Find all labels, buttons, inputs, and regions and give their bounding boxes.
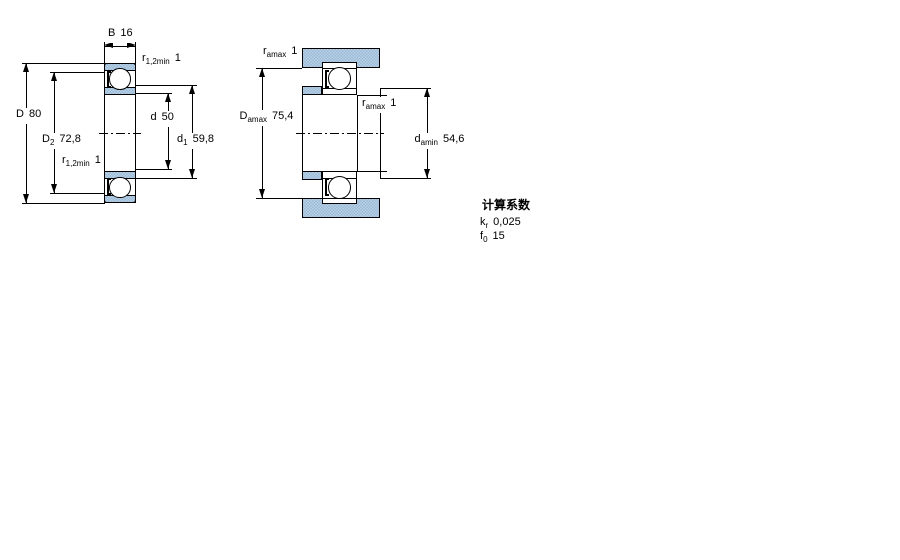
dim-label-d: d50 <box>149 111 176 127</box>
arrowhead-right <box>127 42 136 48</box>
arrowhead-down <box>165 160 171 169</box>
ext-line <box>136 169 172 170</box>
dim-label-r12min-mid: r1,2min1 <box>60 154 103 170</box>
ball-bottom <box>328 176 351 199</box>
shield-bottom <box>107 178 111 195</box>
ext-line <box>22 63 105 64</box>
ext-line <box>22 203 105 204</box>
shield-top <box>107 71 111 88</box>
shaft-shoulder-bottom <box>302 171 322 180</box>
arrowhead-down <box>51 184 57 193</box>
ext-line <box>136 85 197 86</box>
dim-line-d <box>168 93 169 170</box>
ext-line <box>380 178 432 179</box>
centerline <box>296 133 384 134</box>
dim-label-ramax-top: ramax1 <box>261 45 299 61</box>
dim-label-D: D80 <box>14 108 43 124</box>
factors-title: 计算系数 <box>482 196 530 213</box>
ext-line <box>136 178 197 179</box>
arrowhead-up <box>424 88 430 97</box>
factor-f0: f015 <box>478 230 507 246</box>
shield-top <box>325 70 329 88</box>
ext-line <box>50 72 105 73</box>
dim-line-D <box>26 63 27 203</box>
ext-line <box>256 198 302 199</box>
arrowhead-up <box>23 63 29 72</box>
dim-label-Damax: Damax75,4 <box>238 110 296 126</box>
shield-bottom <box>325 178 329 196</box>
arrowhead-up <box>165 93 171 102</box>
shaft-surface-line <box>357 171 387 172</box>
arrowhead-down <box>189 169 195 178</box>
arrowhead-down <box>424 169 430 178</box>
arrowhead-left <box>104 42 113 48</box>
dim-label-d1: d159,8 <box>175 133 216 149</box>
arrowhead-up <box>51 72 57 81</box>
centerline <box>99 133 141 134</box>
shaft-shoulder-top <box>302 86 322 95</box>
ext-line <box>50 193 105 194</box>
arrowhead-up <box>259 68 265 77</box>
arrowhead-down <box>259 189 265 198</box>
ball-bottom <box>109 177 131 199</box>
dim-label-damin: damin54,6 <box>413 133 467 149</box>
dim-label-B: B16 <box>106 27 135 43</box>
dim-label-r12min-top: r1,2min1 <box>140 52 183 68</box>
arrowhead-down <box>23 194 29 203</box>
ball-top <box>109 68 131 90</box>
dim-label-ramax-mid: ramax1 <box>360 97 398 113</box>
dim-line-Damax <box>262 68 263 198</box>
arrowhead-up <box>189 85 195 94</box>
ball-top <box>328 67 351 90</box>
bearing-dimension-diagram: B16 r1,2min1 D80 D272,8 r1,2min1 d50 d15… <box>0 0 900 560</box>
dim-label-D2: D272,8 <box>40 133 83 149</box>
